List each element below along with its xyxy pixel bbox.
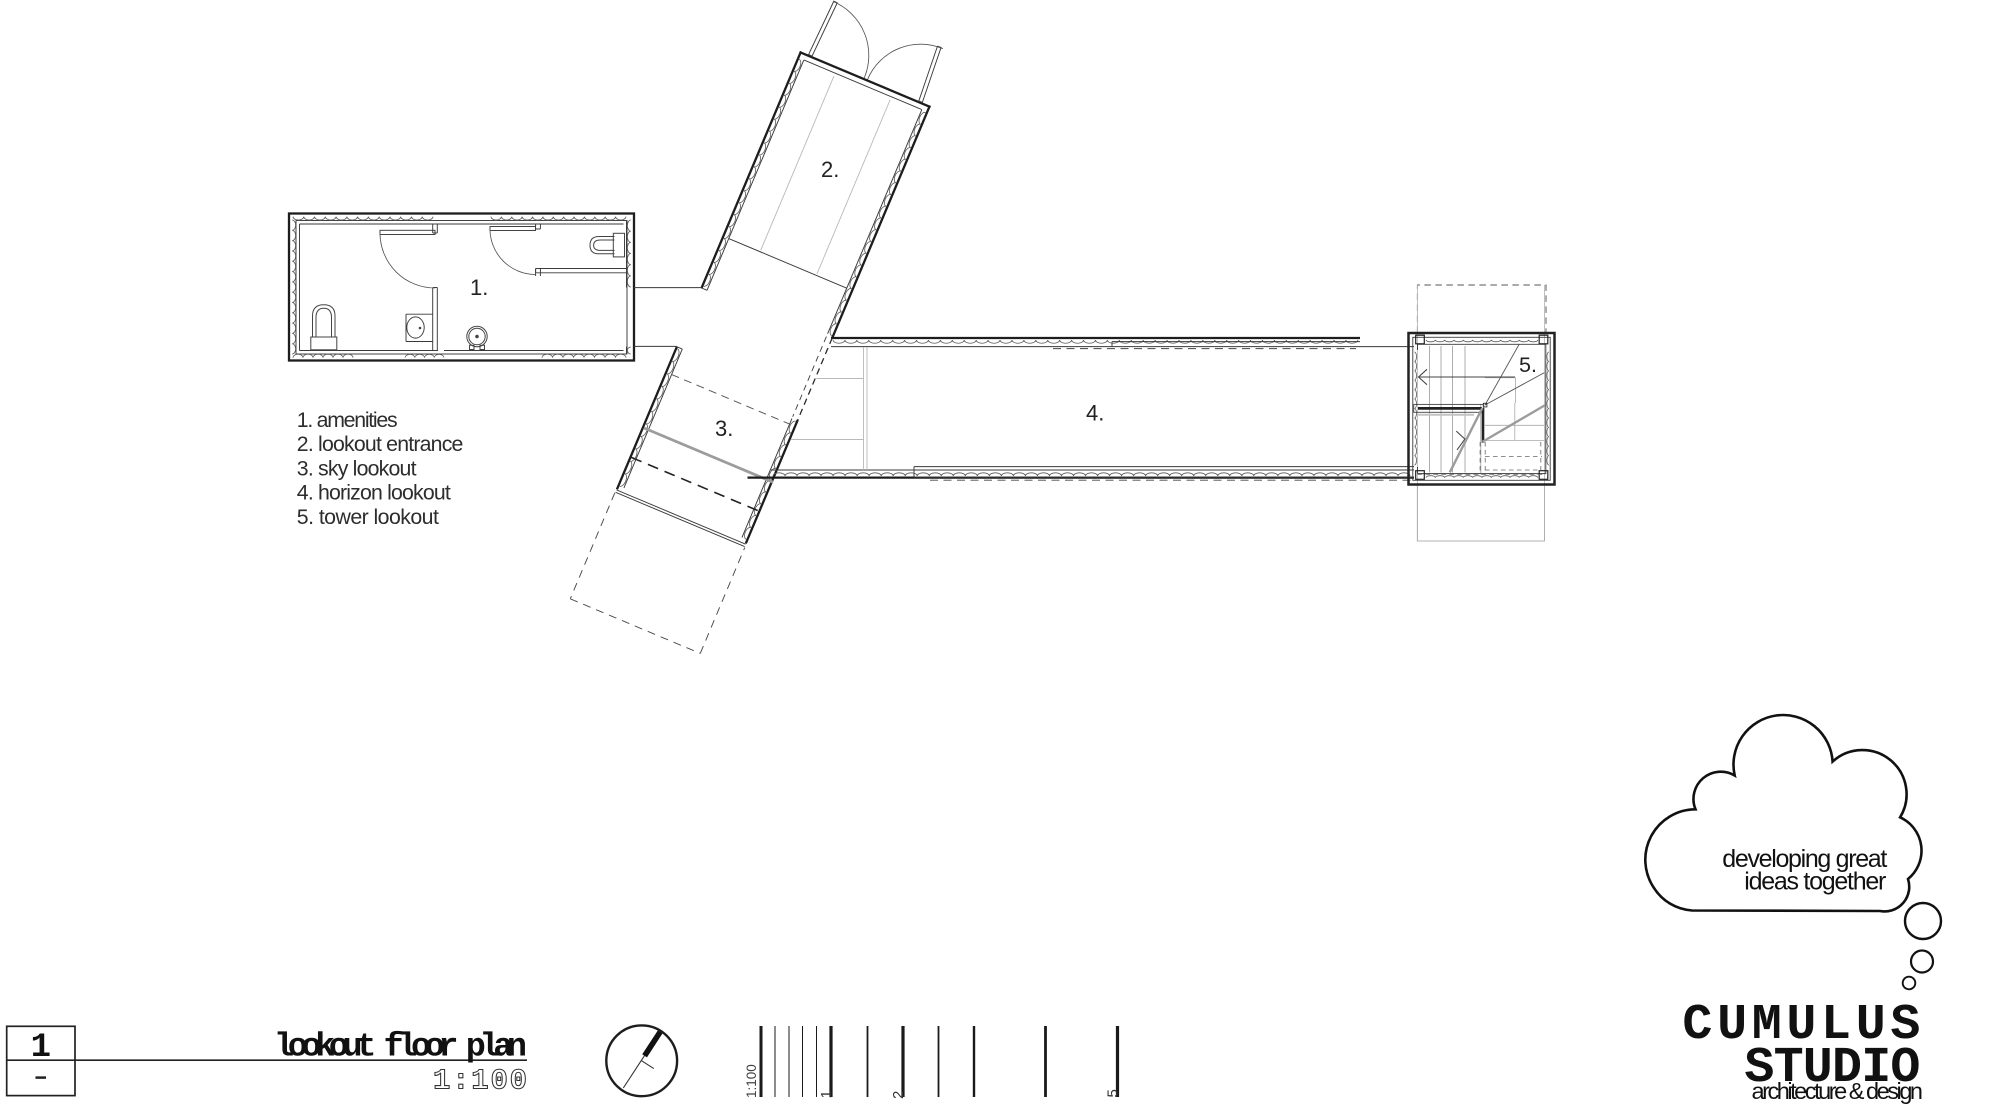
svg-text:3. sky lookout: 3. sky lookout bbox=[297, 456, 417, 480]
svg-text:5: 5 bbox=[1105, 1089, 1122, 1097]
svg-text:ideas together: ideas together bbox=[1744, 868, 1886, 896]
svg-text:1: 1 bbox=[818, 1090, 835, 1098]
svg-text:architecture & design: architecture & design bbox=[1752, 1078, 1924, 1104]
svg-text:2: 2 bbox=[890, 1091, 907, 1099]
svg-text:2.: 2. bbox=[821, 157, 839, 182]
svg-text:4.: 4. bbox=[1086, 401, 1104, 426]
svg-text:lookout floor plan: lookout floor plan bbox=[274, 1029, 527, 1067]
svg-text:2. lookout entrance: 2. lookout entrance bbox=[297, 432, 464, 456]
svg-text:1: 1 bbox=[31, 1029, 51, 1067]
svg-text:1:100: 1:100 bbox=[744, 1064, 759, 1098]
svg-text:4. horizon lookout: 4. horizon lookout bbox=[297, 481, 451, 505]
svg-text:3.: 3. bbox=[715, 416, 733, 441]
svg-text:5. tower lookout: 5. tower lookout bbox=[297, 505, 439, 529]
svg-text:1. amenities: 1. amenities bbox=[297, 408, 398, 432]
svg-text:5.: 5. bbox=[1519, 353, 1537, 377]
svg-text:1:100: 1:100 bbox=[433, 1065, 527, 1098]
svg-text:1.: 1. bbox=[470, 275, 488, 300]
